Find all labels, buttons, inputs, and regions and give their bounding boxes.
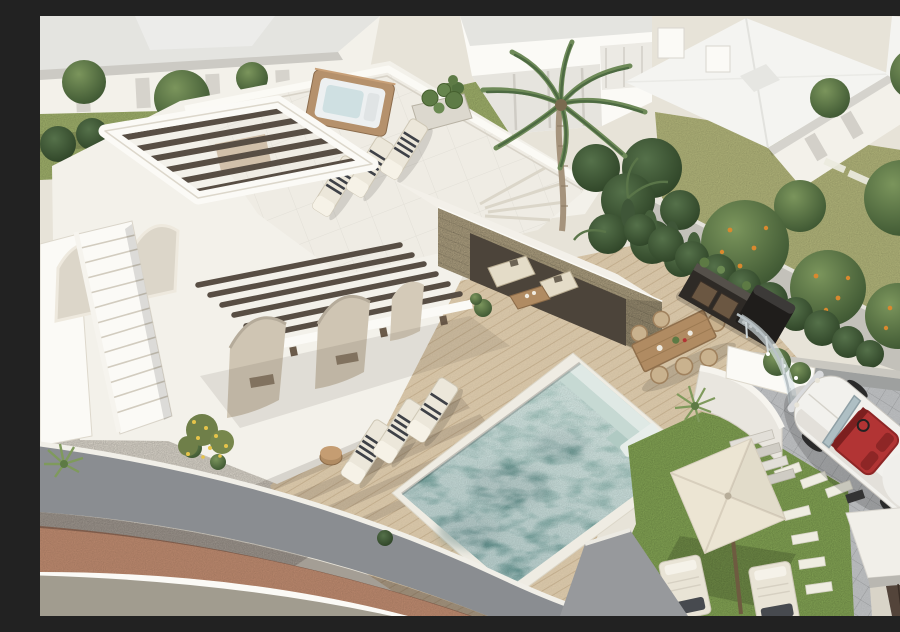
scene-canvas xyxy=(40,16,900,616)
villa-aerial-render: Aerial 3D render of a modern Ibiza-style… xyxy=(40,16,900,616)
side-table xyxy=(320,446,342,465)
